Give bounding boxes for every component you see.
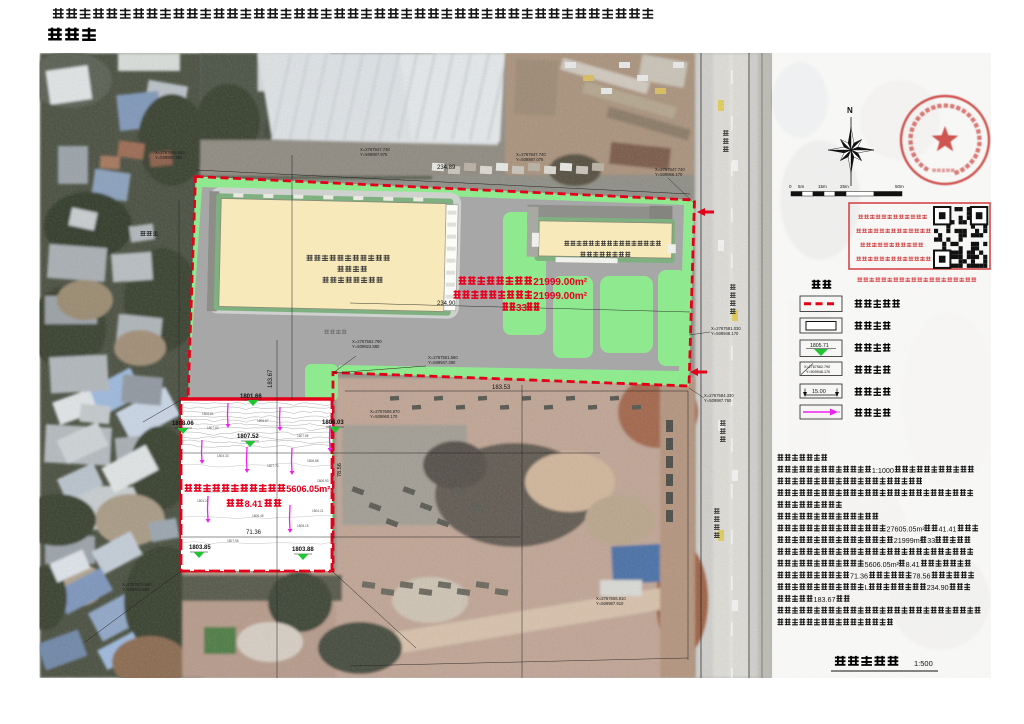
svg-text:234.90: 234.90 (927, 583, 949, 592)
svg-text:L: L (865, 583, 869, 592)
svg-text:27605.05m²: 27605.05m² (887, 525, 926, 534)
svg-text:1:1000: 1:1000 (872, 466, 894, 475)
svg-text:5606.05m²: 5606.05m² (286, 484, 330, 494)
svg-text:Y=509987.910: Y=509987.910 (596, 601, 624, 606)
svg-text:1806.93: 1806.93 (317, 479, 329, 483)
svg-text:33: 33 (516, 303, 528, 314)
svg-text:1808.88: 1808.88 (307, 459, 319, 463)
svg-text:21999.00m²: 21999.00m² (533, 291, 588, 302)
svg-text:Y=509987.975: Y=509987.975 (360, 152, 388, 157)
svg-text:21999.00m²: 21999.00m² (533, 277, 588, 288)
svg-text:8.41: 8.41 (245, 499, 263, 509)
svg-text:21999m²: 21999m² (894, 536, 923, 545)
svg-text:1804.22: 1804.22 (197, 499, 209, 503)
svg-text:Y=509941.660: Y=509941.660 (122, 587, 150, 592)
svg-text:1806.03: 1806.03 (322, 420, 344, 426)
svg-text:8.41: 8.41 (906, 560, 920, 569)
svg-text:Y=509987.760: Y=509987.760 (704, 398, 732, 403)
svg-text:50m: 50m (895, 184, 904, 189)
svg-text:183.67: 183.67 (814, 595, 836, 604)
svg-text:Y=509987.075: Y=509987.075 (516, 157, 544, 162)
svg-text:41.41: 41.41 (939, 525, 957, 534)
svg-text:1808.15: 1808.15 (297, 524, 309, 528)
svg-text:1806.48: 1806.48 (252, 514, 264, 518)
svg-text:15m: 15m (818, 184, 827, 189)
svg-text:Y=509960.170: Y=509960.170 (370, 414, 398, 419)
svg-text:1807.70: 1807.70 (267, 464, 279, 468)
svg-text:33: 33 (927, 536, 935, 545)
svg-text:1803.85: 1803.85 (189, 545, 211, 551)
svg-text:Y=509887.380: Y=509887.380 (155, 155, 183, 160)
svg-text:78.56: 78.56 (337, 463, 343, 477)
svg-text:1807.60: 1807.60 (207, 426, 219, 430)
svg-text:183.67: 183.67 (268, 369, 274, 388)
svg-text:183.53: 183.53 (492, 385, 511, 391)
svg-text:1807.98: 1807.98 (227, 539, 239, 543)
svg-text:1:500: 1:500 (914, 659, 933, 668)
svg-text:N: N (847, 106, 853, 115)
svg-text:Y=509922.880: Y=509922.880 (352, 344, 380, 349)
svg-text:25m: 25m (840, 184, 849, 189)
svg-text:78.56: 78.56 (913, 572, 931, 581)
svg-text:1806.67: 1806.67 (257, 419, 269, 423)
svg-text:15.00: 15.00 (812, 389, 826, 395)
svg-text:71.36: 71.36 (850, 572, 868, 581)
svg-text:1806.81: 1806.81 (202, 412, 214, 416)
svg-text:Y=509948.170: Y=509948.170 (711, 331, 739, 336)
svg-text:1807.85: 1807.85 (297, 434, 309, 438)
svg-text:1808.06: 1808.06 (172, 421, 194, 427)
svg-text:234.90: 234.90 (437, 301, 456, 307)
svg-text:Y=509948.170: Y=509948.170 (806, 370, 830, 374)
svg-text:71.36: 71.36 (246, 530, 262, 536)
svg-text:Y=509966.170: Y=509966.170 (655, 172, 683, 177)
svg-text:5606.05m²: 5606.05m² (865, 560, 900, 569)
svg-text:Y=509947.390: Y=509947.390 (428, 360, 456, 365)
svg-text:1803.88: 1803.88 (292, 547, 314, 553)
svg-text:5m: 5m (798, 184, 805, 189)
svg-text:1801.66: 1801.66 (240, 394, 262, 400)
svg-text:1804.21: 1804.21 (312, 509, 324, 513)
svg-text:1804.33: 1804.33 (217, 454, 229, 458)
svg-text:234.89: 234.89 (437, 165, 456, 171)
svg-text:1807.52: 1807.52 (237, 434, 259, 440)
